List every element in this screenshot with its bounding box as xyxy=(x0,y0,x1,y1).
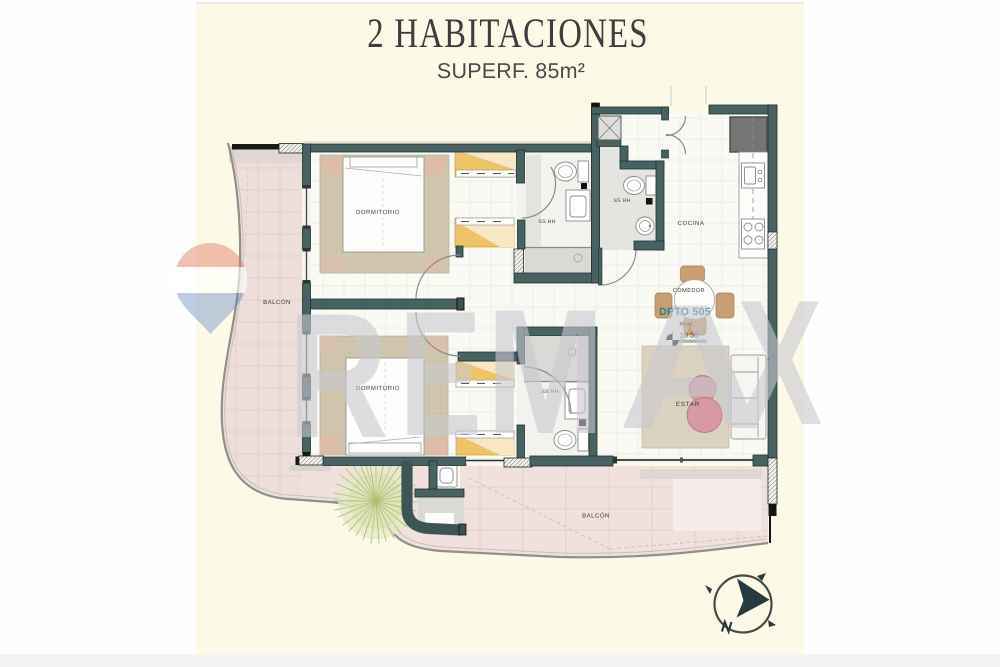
svg-text:M: M xyxy=(486,272,605,471)
svg-text:SS HH: SS HH xyxy=(613,198,630,204)
svg-text:DORMITORIO: DORMITORIO xyxy=(356,209,400,216)
svg-text:BALCÓN: BALCÓN xyxy=(263,298,291,306)
svg-text:BALCÓN: BALCÓN xyxy=(582,512,610,520)
svg-text:X: X xyxy=(737,263,822,462)
svg-text:2 HABITACIONES: 2 HABITACIONES xyxy=(367,11,648,57)
svg-text:R: R xyxy=(288,276,388,475)
svg-text:E: E xyxy=(399,274,482,473)
svg-text:SS HH: SS HH xyxy=(538,219,555,225)
svg-text:COCINA: COCINA xyxy=(678,220,705,227)
svg-text:SUPERF. 85m²: SUPERF. 85m² xyxy=(437,59,585,83)
